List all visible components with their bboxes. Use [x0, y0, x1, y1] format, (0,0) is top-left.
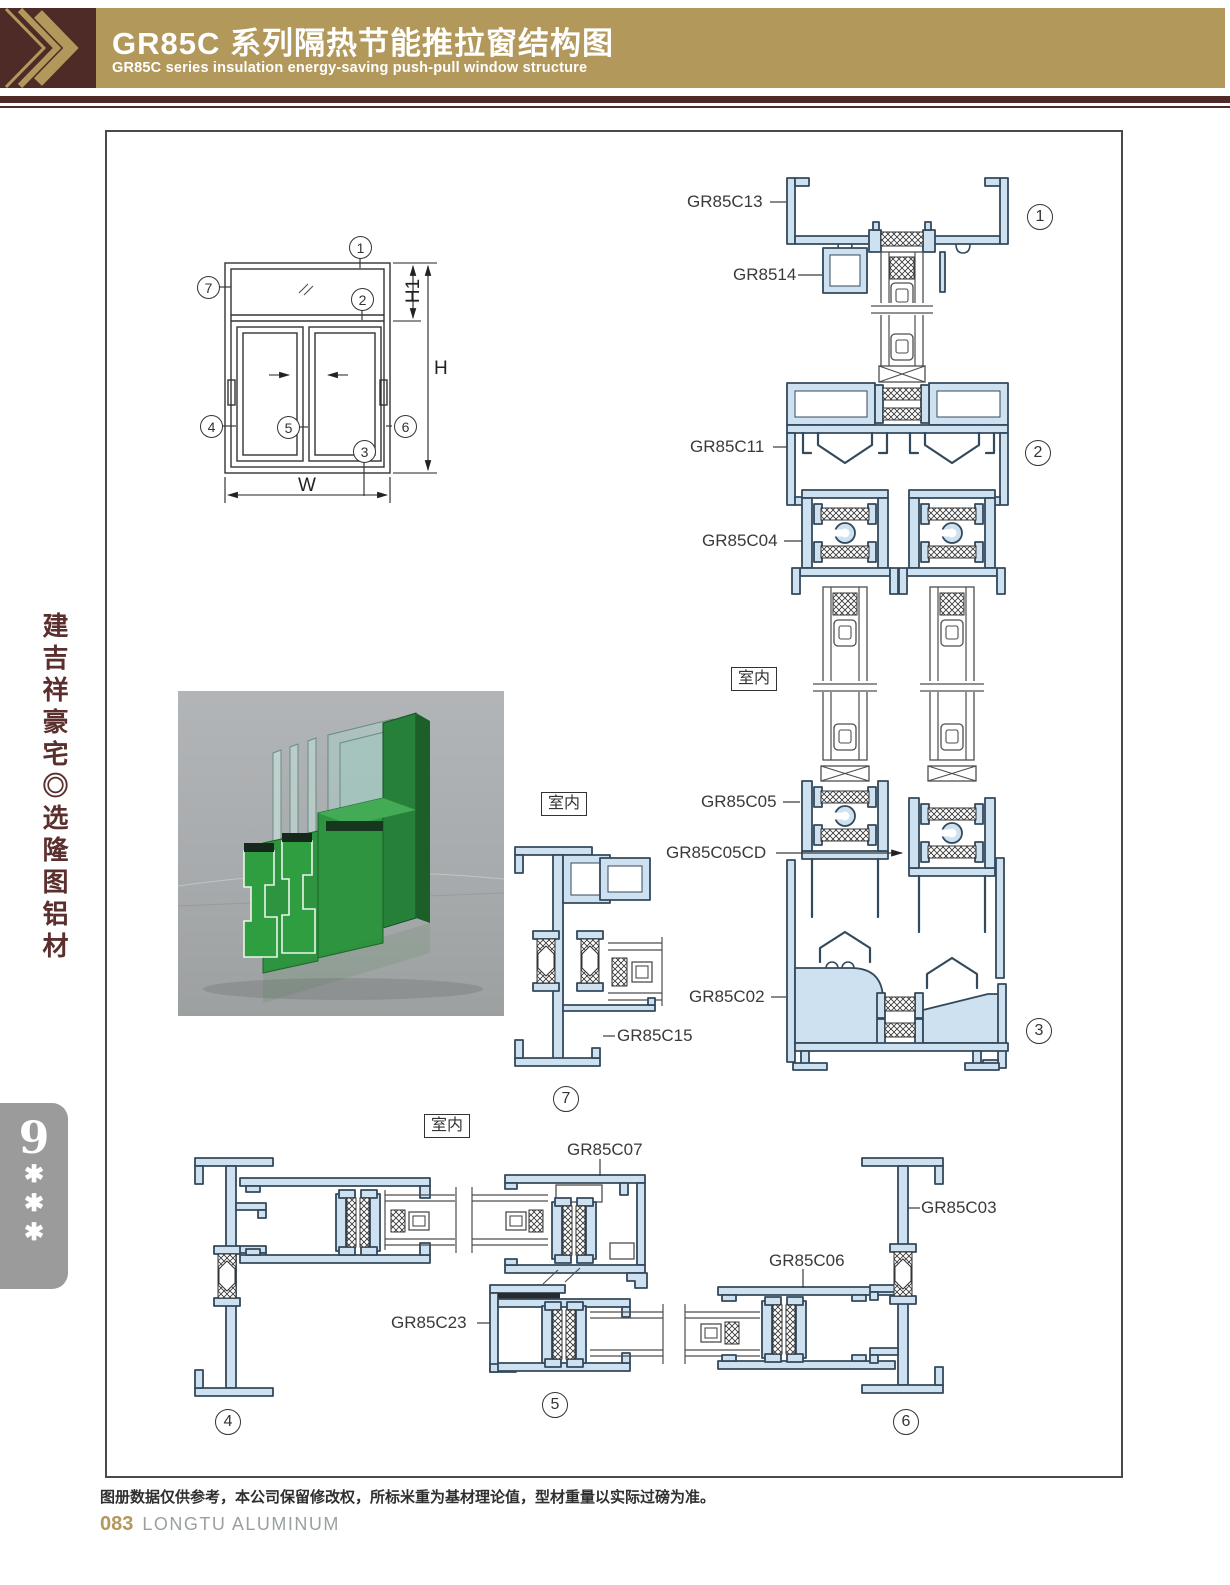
callout-7: 7: [197, 276, 220, 299]
dim-h: H: [434, 358, 448, 380]
page-title: GR85C 系列隔热节能推拉窗结构图: [112, 18, 614, 63]
label-gr85c06: GR85C06: [769, 1251, 845, 1271]
badge-star: ✱: [24, 1219, 44, 1248]
dim-w: W: [298, 475, 316, 497]
section-marker-6: 6: [893, 1409, 919, 1435]
interior-label: 室内: [731, 667, 777, 691]
divider-stripe-thick: [0, 96, 1230, 103]
page-subtitle: GR85C series insulation energy-saving pu…: [112, 60, 587, 76]
label-gr8514: GR8514: [733, 265, 796, 285]
profile-3d-render: [178, 691, 504, 1016]
label-gr85c03: GR85C03: [921, 1198, 997, 1218]
label-gr85c05: GR85C05: [701, 792, 777, 812]
page-number: 083: [100, 1513, 133, 1535]
label-gr85c07: GR85C07: [567, 1140, 643, 1160]
section-marker-5: 5: [542, 1392, 568, 1418]
section-marker-3: 3: [1026, 1018, 1052, 1044]
page-footer: 083LONGTU ALUMINUM: [100, 1513, 340, 1536]
section-marker-7: 7: [553, 1086, 579, 1112]
badge-star: ✱: [24, 1161, 44, 1190]
catalog-page: GR85C 系列隔热节能推拉窗结构图 GR85C series insulati…: [0, 0, 1230, 1585]
label-gr85c13: GR85C13: [687, 192, 763, 212]
divider-stripe-thin: [0, 106, 1230, 108]
label-gr85c15: GR85C15: [617, 1026, 693, 1046]
label-gr85c05cd: GR85C05CD: [666, 843, 766, 863]
label-gr85c23: GR85C23: [391, 1313, 467, 1333]
callout-5: 5: [277, 416, 300, 439]
callout-2: 2: [351, 288, 374, 311]
callout-1: 1: [349, 236, 372, 259]
label-gr85c11: GR85C11: [690, 437, 764, 457]
disclaimer-text: 图册数据仅供参考，本公司保留修改权，所标米重为基材理论值，型材重量以实际过磅为准…: [100, 1486, 715, 1507]
callout-3: 3: [353, 440, 376, 463]
callout-6: 6: [394, 415, 417, 438]
profile-3d-art: [178, 691, 504, 1016]
section-marker-4: 4: [215, 1409, 241, 1435]
dim-h1: H1: [403, 279, 425, 303]
chapter-number: 9: [19, 1117, 50, 1161]
interior-label: 室内: [541, 792, 587, 816]
badge-star: ✱: [24, 1190, 44, 1219]
sidebar-slogan: 建吉祥豪宅◎选隆图铝材: [36, 612, 73, 964]
callout-4: 4: [200, 415, 223, 438]
brand-name: LONGTU ALUMINUM: [142, 1514, 340, 1534]
label-gr85c02: GR85C02: [689, 987, 765, 1007]
section-marker-1: 1: [1027, 204, 1053, 230]
section-marker-2: 2: [1025, 440, 1051, 466]
chevron-logo-icon: [0, 8, 100, 88]
chapter-badge: 9 ✱ ✱ ✱: [0, 1103, 68, 1289]
interior-label: 室内: [424, 1114, 470, 1138]
label-gr85c04: GR85C04: [702, 531, 778, 551]
